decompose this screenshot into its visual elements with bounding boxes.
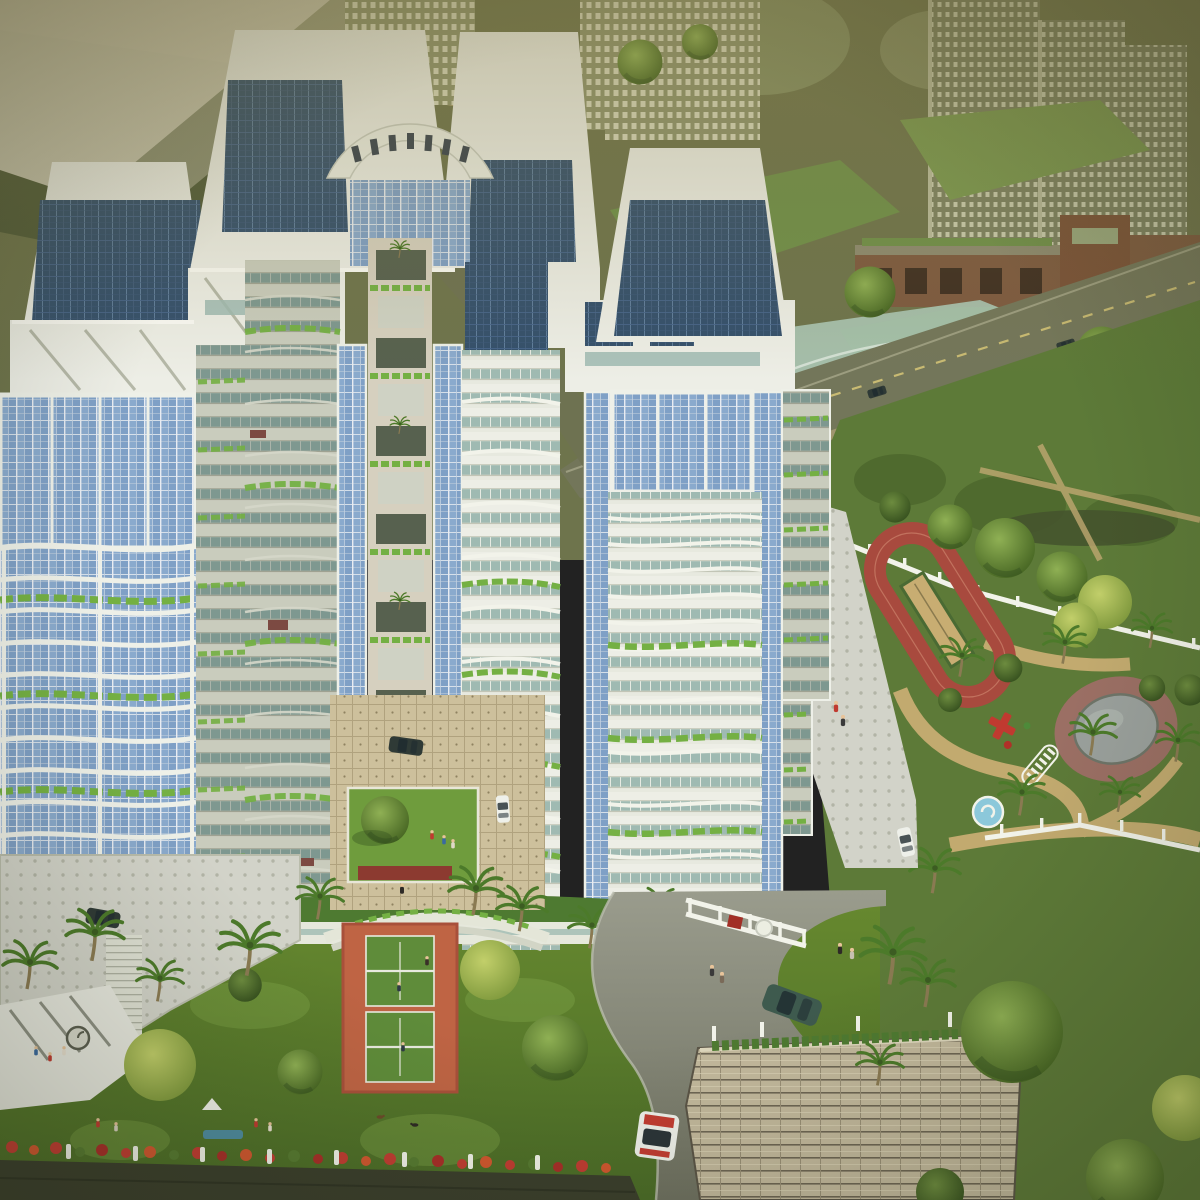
rendering-canvas — [0, 0, 1200, 1200]
architectural-rendering — [0, 0, 1200, 1200]
vignette — [0, 0, 1200, 1200]
